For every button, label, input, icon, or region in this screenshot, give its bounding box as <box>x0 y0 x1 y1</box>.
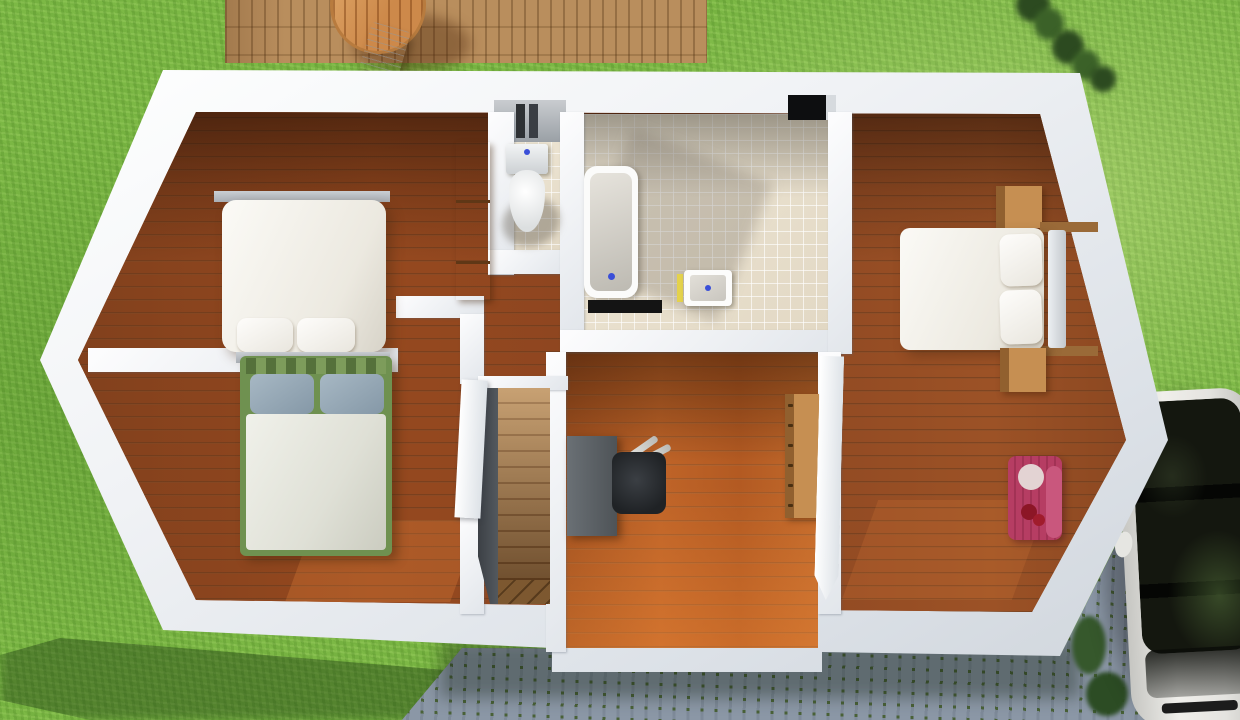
hedge-bush <box>1090 66 1116 92</box>
armchair-accent <box>1033 514 1045 526</box>
desk <box>567 436 617 536</box>
bath-mat <box>588 300 662 313</box>
drawer-handle <box>788 504 793 507</box>
armchair-armrest <box>1046 466 1062 538</box>
stair-winder <box>498 580 550 604</box>
pillow <box>999 289 1043 344</box>
staircase <box>498 388 550 580</box>
nightstand-top <box>996 186 1042 228</box>
wooden-deck <box>225 0 707 63</box>
drawer-handle <box>788 424 793 427</box>
car-windshield <box>1145 645 1240 698</box>
sink-drain <box>705 285 711 291</box>
drawer-handle <box>788 484 793 487</box>
pillow <box>250 374 314 414</box>
wall-bathroom-bottom <box>560 330 834 352</box>
duvet <box>246 414 386 550</box>
niche-shelf-bar <box>516 104 525 138</box>
scene-floorplan-render <box>0 0 1240 720</box>
pillow <box>297 318 355 352</box>
shrub <box>1086 672 1128 716</box>
bathtub-drain <box>608 273 615 280</box>
bed-headboard <box>1048 230 1066 348</box>
drawer-dresser <box>785 394 819 518</box>
niche-shelf-bar <box>529 104 538 138</box>
nightstand-bottom <box>1000 348 1046 392</box>
wall-bathroom-right <box>828 112 852 354</box>
office-chair <box>612 452 666 514</box>
pillow <box>237 318 293 352</box>
shrub <box>1072 616 1106 674</box>
wall-stairwell-left-upper <box>460 314 484 384</box>
drawer-handle <box>788 404 793 407</box>
towel <box>677 274 683 302</box>
pillow <box>320 374 384 414</box>
wall-wc-bottom <box>488 250 564 274</box>
armchair-cushion <box>1018 464 1044 490</box>
drawer-handle <box>788 444 793 447</box>
wall-bathroom-left <box>560 112 584 334</box>
wardrobe <box>456 142 490 300</box>
bed-headboard-slats <box>246 358 386 374</box>
pillow <box>999 233 1043 286</box>
drawer-handle <box>788 464 793 467</box>
toilet-flush-button <box>524 149 530 155</box>
